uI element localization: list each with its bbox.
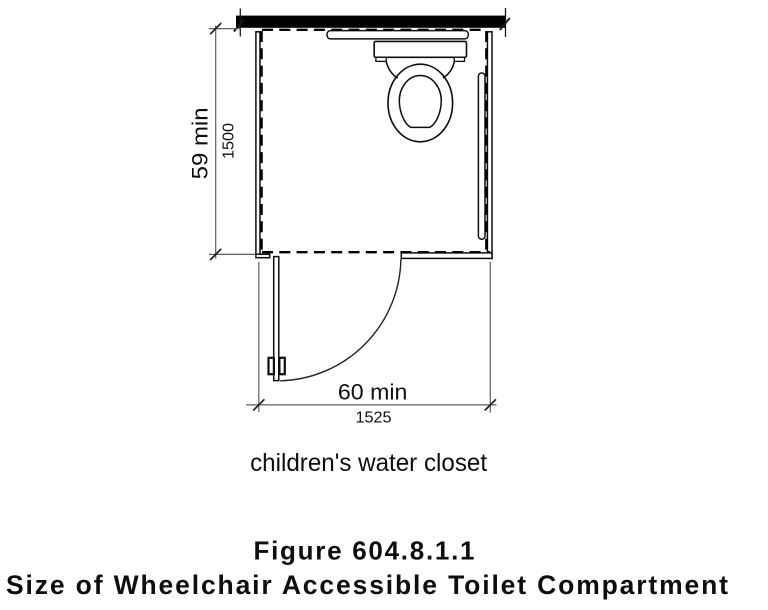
svg-text:60 min: 60 min — [338, 379, 408, 404]
svg-text:Size of Wheelchair Accessible: Size of Wheelchair Accessible Toilet Com… — [6, 570, 728, 600]
svg-text:1525: 1525 — [356, 410, 392, 427]
svg-text:children's water closet: children's water closet — [250, 449, 487, 477]
svg-text:59 min: 59 min — [188, 107, 213, 179]
svg-text:Figure 604.8.1.1: Figure 604.8.1.1 — [254, 535, 475, 565]
svg-text:1500: 1500 — [221, 123, 238, 159]
